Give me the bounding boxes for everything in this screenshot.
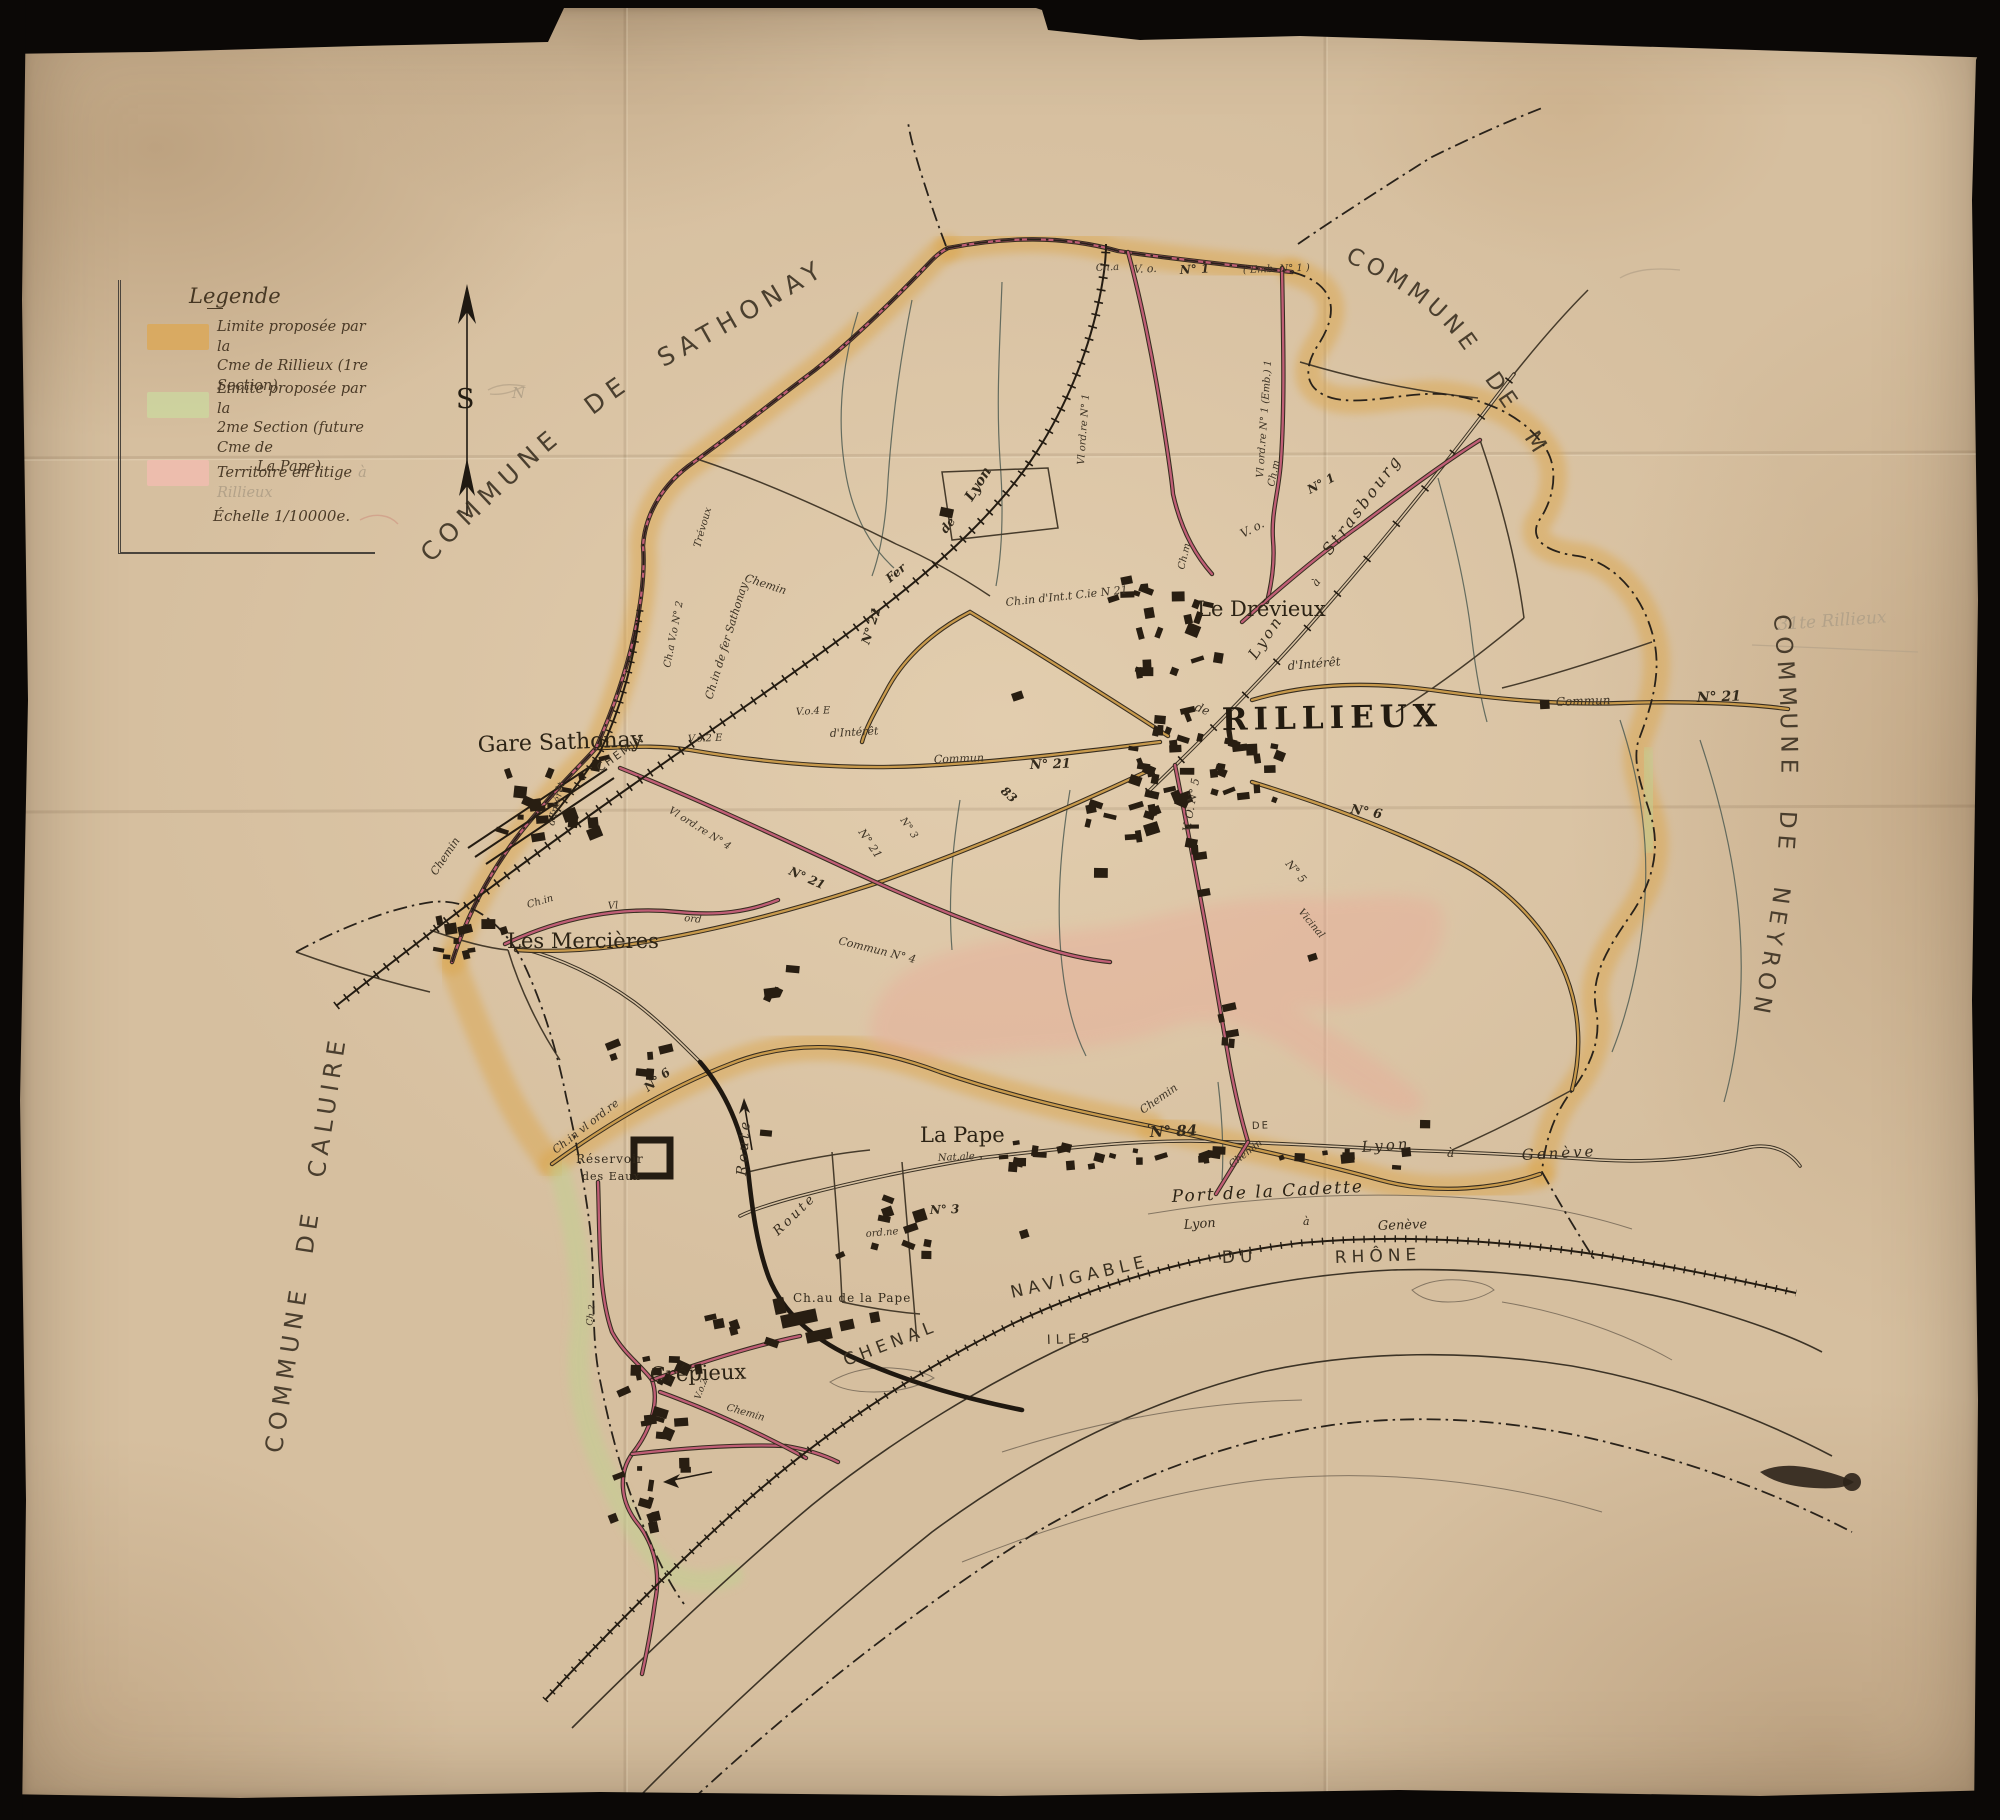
label-de-84: DE xyxy=(1252,1120,1270,1132)
building xyxy=(903,1222,919,1233)
label-vo-top: V. o. xyxy=(1133,262,1157,276)
building xyxy=(921,1251,931,1259)
label-n84: N° 84 xyxy=(1149,1121,1198,1141)
building xyxy=(1013,1140,1020,1145)
label-fer-de: de xyxy=(937,514,958,536)
legend-item-3: Territoire en litigeà Rillieux xyxy=(217,464,417,503)
label-commun-w: Commun xyxy=(934,751,985,766)
pencil-scribble xyxy=(1620,269,1680,278)
label-chin-lm: Ch.in xyxy=(526,893,555,911)
building xyxy=(1109,1153,1117,1159)
label-chemin-84: Chemin xyxy=(1137,1081,1180,1116)
building xyxy=(1094,868,1108,878)
building xyxy=(1008,1162,1018,1172)
label-n21-sw: N° 21 xyxy=(786,864,827,893)
building xyxy=(658,1043,673,1054)
building xyxy=(1154,627,1163,639)
building xyxy=(674,1418,688,1427)
building xyxy=(1056,1145,1066,1154)
pencil-north-note: N xyxy=(511,384,526,402)
green-limit-east xyxy=(1645,756,1652,844)
rhone-channel xyxy=(572,1195,1832,1796)
label-port-cadette: Port de la Cadette xyxy=(1170,1177,1364,1207)
building xyxy=(1225,1029,1239,1038)
building xyxy=(1133,1148,1139,1153)
label-chenal: CHENAL xyxy=(841,1316,941,1370)
scanned-map-photo: { "document": { "type": "Carte ancienne … xyxy=(0,0,2000,1820)
building xyxy=(1294,1153,1305,1162)
label-nationale: Nat.ale xyxy=(937,1151,976,1164)
building xyxy=(1103,813,1117,821)
building xyxy=(1345,1149,1350,1156)
building xyxy=(1271,796,1278,803)
building xyxy=(1185,622,1202,638)
building xyxy=(444,922,458,935)
label-commun-n4: Commun N° 4 xyxy=(837,934,917,966)
building xyxy=(679,1458,690,1469)
label-dinteret-w: d'Intérêt xyxy=(829,724,879,740)
building xyxy=(630,1365,641,1376)
building xyxy=(1273,750,1286,762)
label-reservoir-2: des Eaux xyxy=(582,1170,641,1183)
label-cha-top: Ch.a xyxy=(1096,262,1120,274)
label-n1-top: N° 1 xyxy=(1178,261,1209,277)
building xyxy=(568,816,579,828)
label-n5-b: N° 5 xyxy=(1282,857,1309,886)
building xyxy=(1246,744,1257,756)
building xyxy=(839,1319,855,1332)
building xyxy=(1011,690,1024,701)
legend: Legende Limite proposée par la Cme de Ri… xyxy=(118,280,375,554)
building xyxy=(1144,789,1159,799)
label-fer: Fer xyxy=(882,559,910,585)
label-n21-d: N° 21 xyxy=(855,826,885,861)
compass-letter: S xyxy=(456,384,475,415)
building xyxy=(609,1053,617,1061)
label-rhone: RHÔNE xyxy=(1334,1243,1421,1268)
building xyxy=(713,1318,725,1329)
label-chemin-ne: Chemin xyxy=(743,571,788,597)
label-rail-geneve: Genève xyxy=(1378,1217,1428,1234)
building xyxy=(517,814,523,819)
label-trevoux: Trévoux xyxy=(692,506,714,549)
label-n21-v: N° 21 xyxy=(858,606,883,647)
ink-smudge xyxy=(1760,1466,1854,1489)
building xyxy=(1066,1160,1075,1170)
label-road-a: à xyxy=(1447,1146,1454,1160)
label-n1-drv: N° 1 xyxy=(1304,470,1338,497)
building xyxy=(1392,1165,1401,1170)
label-rail-a: à xyxy=(1303,1215,1310,1228)
building xyxy=(1185,838,1198,849)
label-str-a: à xyxy=(1309,576,1323,589)
building xyxy=(1019,1229,1030,1239)
building xyxy=(435,915,443,925)
label-ord-lm: ord xyxy=(684,913,702,926)
building xyxy=(1169,667,1179,677)
commune-label-neyron: COMMUNE DE NEYRON xyxy=(1746,613,1801,1021)
building xyxy=(1221,1037,1228,1046)
building xyxy=(1180,768,1194,775)
building xyxy=(648,1480,655,1492)
building xyxy=(1136,1157,1143,1165)
label-n3-lp: N° 3 xyxy=(929,1202,960,1217)
label-n83: 83 xyxy=(998,784,1020,806)
river-bank-north xyxy=(572,1270,1822,1728)
label-ord-lp: ord.ne xyxy=(865,1226,899,1240)
legend-scale: Échelle 1/10000e. xyxy=(213,506,350,526)
label-dinteret-e: d'Intérêt xyxy=(1287,654,1341,673)
label-la-pape: La Pape xyxy=(920,1123,1005,1147)
building xyxy=(1222,786,1235,795)
legend-title-underline xyxy=(207,308,223,309)
legend-swatch-orange xyxy=(147,324,209,350)
label-chemin-w: Chemin xyxy=(428,835,463,878)
building xyxy=(1264,765,1276,773)
building xyxy=(647,1052,653,1060)
building xyxy=(882,1194,895,1204)
neighbour-commune-names: COMMUNE DE SATHONAY COMMUNE DE MIRIBEL C… xyxy=(0,0,1801,1455)
building xyxy=(453,938,458,944)
building xyxy=(637,1466,642,1471)
building xyxy=(1143,821,1160,836)
building xyxy=(1154,1152,1168,1161)
building xyxy=(513,785,527,798)
building xyxy=(481,919,495,929)
building xyxy=(1093,1152,1105,1163)
building xyxy=(1212,1146,1225,1155)
building xyxy=(1322,1150,1328,1155)
building xyxy=(1191,655,1205,663)
building xyxy=(1157,725,1163,736)
building xyxy=(1228,1039,1235,1049)
building xyxy=(1183,614,1193,625)
label-n21-w: N° 21 xyxy=(1029,757,1071,773)
label-chm-a: Ch.m xyxy=(1176,542,1193,571)
legend-title: Legende xyxy=(189,282,281,310)
building xyxy=(1172,591,1185,601)
map-canvas: Gare SathonayLes MercièresLe DrévieuxRIL… xyxy=(0,0,2000,1820)
building xyxy=(1154,715,1166,724)
building xyxy=(923,1239,931,1248)
label-rillieux: RILLIEUX xyxy=(1222,698,1444,738)
building xyxy=(1237,792,1250,800)
label-le-drevieux: Le Drévieux xyxy=(1197,597,1326,621)
label-iles: ILES xyxy=(1047,1331,1095,1348)
paper-folds xyxy=(24,8,1980,1795)
label-n6-e: N° 6 xyxy=(1348,802,1383,822)
svg-text:COMMUNE DE CALUIRE: COMMUNE DE CALUIRE xyxy=(260,1033,352,1455)
building xyxy=(1254,784,1261,793)
building xyxy=(1144,607,1155,619)
label-ch2-cr: Ch.2 xyxy=(585,1304,598,1327)
label-n3-d: N° 3 xyxy=(897,815,920,841)
building xyxy=(772,1297,786,1315)
legend-swatch-pink xyxy=(147,460,209,486)
river-bank-south xyxy=(640,1355,1832,1796)
building xyxy=(1420,1120,1430,1128)
building xyxy=(764,1337,780,1349)
building xyxy=(786,965,800,973)
building xyxy=(1228,739,1241,749)
building xyxy=(642,1356,650,1362)
building xyxy=(1210,788,1218,796)
building xyxy=(999,1155,1009,1160)
label-de-rlx: de xyxy=(1193,700,1212,719)
island-outline xyxy=(1412,1280,1494,1302)
building xyxy=(1253,753,1261,763)
building xyxy=(443,954,451,959)
label-n21-e: N° 21 xyxy=(1696,688,1742,706)
label-vo2e: V.o.2 E xyxy=(688,733,724,745)
label-chateau-la-pape: Ch.au de la Pape xyxy=(793,1291,911,1305)
label-rail-lyon: Lyon xyxy=(1182,1216,1216,1233)
building xyxy=(1169,745,1181,753)
label-commun-e: Commun xyxy=(1556,693,1611,709)
building xyxy=(1135,830,1143,843)
building xyxy=(636,1068,649,1077)
label-vl-lm: Vl xyxy=(607,900,618,912)
building xyxy=(1213,652,1224,664)
building xyxy=(1088,1163,1096,1170)
building xyxy=(1085,804,1097,814)
label-chint-nw: Ch.in d'Int.t C.ie N 21 xyxy=(1005,583,1128,609)
river-thalweg-boundary xyxy=(692,1419,1852,1800)
building xyxy=(1540,700,1550,710)
building xyxy=(760,1129,772,1136)
label-emb-top: ( Emb. N° 1 ) xyxy=(1243,263,1310,276)
building xyxy=(1136,627,1145,640)
building xyxy=(869,1311,880,1323)
label-fer-sathonay: Ch.in de fer Sathonay xyxy=(702,580,750,701)
label-reservoir-1: Réservoir xyxy=(576,1152,644,1166)
building xyxy=(656,1432,666,1440)
building xyxy=(1270,743,1278,749)
commune-label-caluire: COMMUNE DE CALUIRE xyxy=(260,1033,352,1455)
building xyxy=(870,1242,879,1250)
legend-swatch-green xyxy=(147,392,209,418)
label-route-1: Route xyxy=(734,1118,754,1177)
label-chvo-n2: Ch.a V.o N° 2 xyxy=(662,600,686,668)
building xyxy=(605,1038,621,1050)
label-road-lyon: Lyon xyxy=(1360,1135,1411,1156)
label-strasbourg: Strasbourg xyxy=(1318,450,1406,558)
label-vo4e: V.o.4 E xyxy=(796,705,832,718)
map-labels: Gare SathonayLes MercièresLe DrévieuxRIL… xyxy=(428,261,1888,1423)
railway-lyon-geneve xyxy=(545,1239,1796,1700)
building xyxy=(912,1208,928,1223)
building xyxy=(1176,735,1190,744)
label-vo-drv: V. o. xyxy=(1238,517,1267,541)
label-du: DU xyxy=(1221,1247,1257,1268)
building xyxy=(1084,818,1091,827)
building xyxy=(504,768,513,779)
svg-text:COMMUNE DE NEYRON: COMMUNE DE NEYRON xyxy=(1746,613,1801,1021)
label-les-mercieres: Les Mercières xyxy=(507,929,659,953)
